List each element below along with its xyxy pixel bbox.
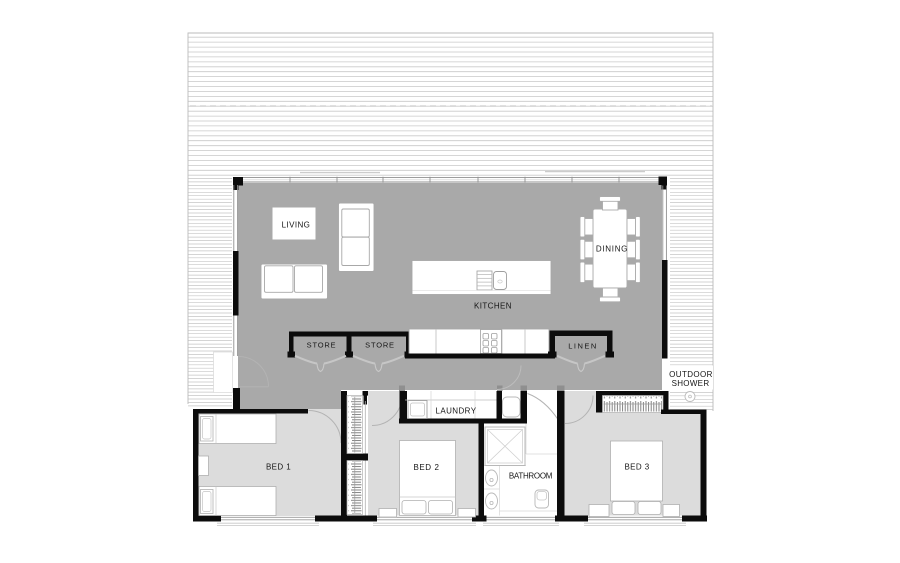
svg-text:BED 3: BED 3 [624, 463, 649, 472]
svg-text:LINEN: LINEN [568, 342, 598, 351]
svg-text:LIVING: LIVING [282, 221, 311, 230]
svg-text:STORE: STORE [307, 341, 337, 350]
svg-text:OUTDOOR: OUTDOOR [669, 370, 713, 379]
svg-text:BATHROOM: BATHROOM [509, 472, 553, 481]
svg-text:DINING: DINING [596, 245, 628, 254]
svg-text:LAUNDRY: LAUNDRY [436, 407, 477, 416]
svg-text:BED 1: BED 1 [266, 463, 291, 472]
svg-text:KITCHEN: KITCHEN [474, 302, 512, 311]
svg-text:BED 2: BED 2 [413, 463, 439, 472]
svg-text:STORE: STORE [365, 341, 395, 350]
svg-text:SHOWER: SHOWER [672, 379, 710, 388]
